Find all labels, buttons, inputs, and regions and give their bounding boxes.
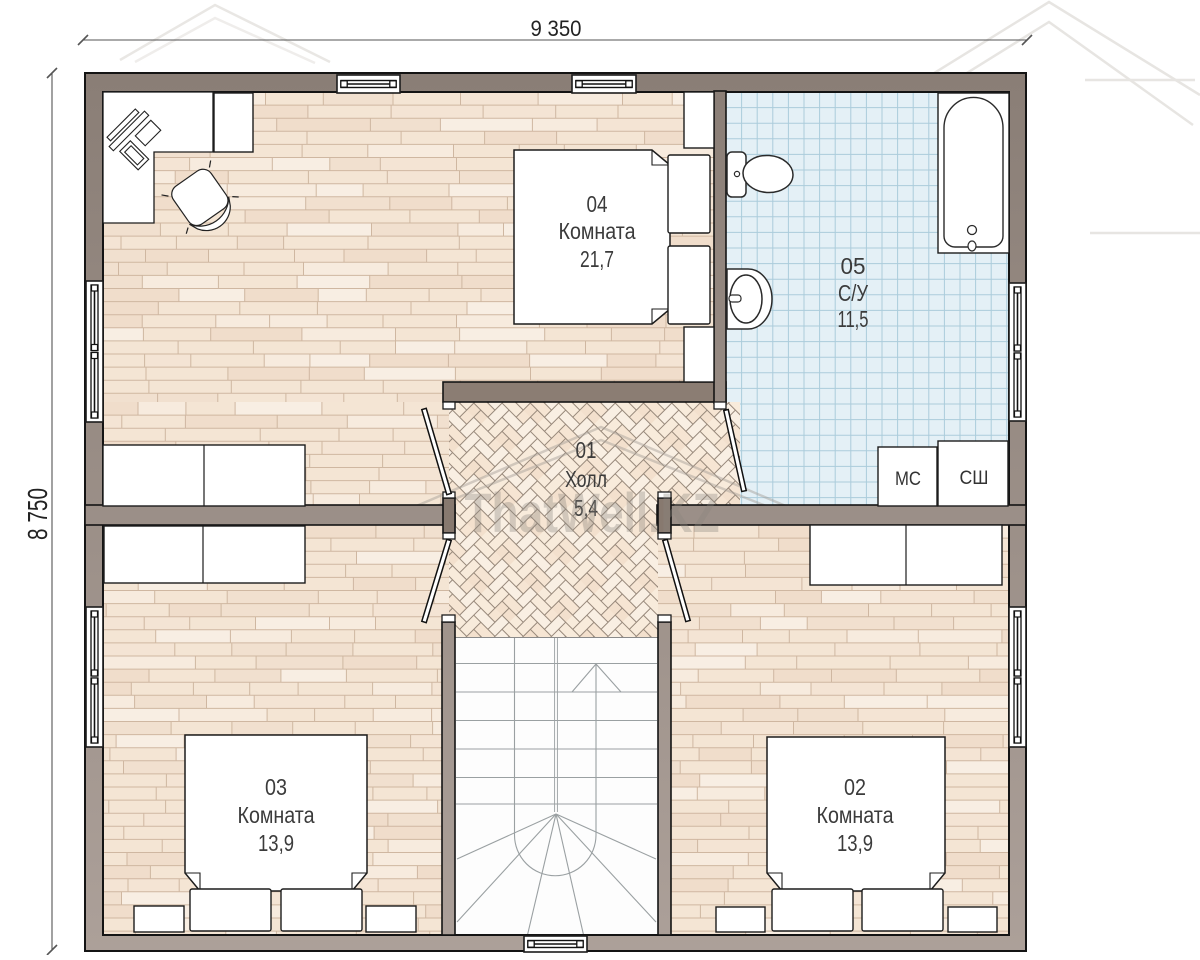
svg-text:13,9: 13,9 (837, 830, 873, 856)
svg-text:05: 05 (841, 253, 866, 279)
svg-text:11,5: 11,5 (838, 306, 869, 332)
svg-text:СШ: СШ (960, 468, 989, 489)
svg-text:МС: МС (895, 469, 921, 490)
svg-text:ThatWell.KZ: ThatWell.KZ (464, 481, 719, 544)
svg-text:С/У: С/У (838, 280, 869, 306)
svg-text:04: 04 (587, 191, 608, 217)
svg-text:Комната: Комната (559, 218, 637, 244)
svg-text:9 350: 9 350 (531, 16, 582, 41)
svg-text:02: 02 (844, 774, 866, 800)
svg-text:03: 03 (265, 774, 287, 800)
svg-text:21,7: 21,7 (580, 246, 614, 272)
svg-text:Комната: Комната (817, 802, 895, 828)
svg-text:01: 01 (576, 437, 597, 463)
svg-text:8 750: 8 750 (22, 488, 53, 540)
svg-text:13,9: 13,9 (258, 830, 294, 856)
svg-text:Комната: Комната (238, 802, 316, 828)
